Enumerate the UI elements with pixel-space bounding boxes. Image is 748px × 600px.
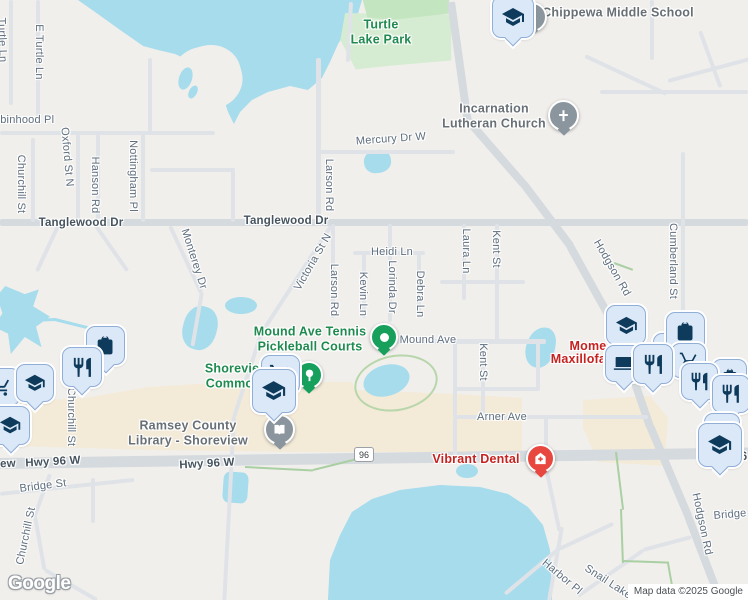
- fork-knife-icon: [642, 353, 665, 376]
- laptop-icon: [613, 353, 634, 374]
- road-oxford: [76, 131, 80, 222]
- poi-label-chippewa-middle-school[interactable]: Chippewa Middle School: [542, 6, 694, 21]
- street-label-kevin-ln: Kevin Ln: [357, 272, 369, 316]
- fork-knife-icon: [71, 356, 94, 379]
- graduation-cap-icon: [707, 432, 732, 457]
- graduation-cap-icon: [261, 378, 286, 403]
- tennis-dot-icon: [380, 333, 389, 342]
- graduation-cap-icon: [0, 414, 22, 436]
- library-marker[interactable]: [264, 414, 295, 445]
- poi-label-line: Incarnation: [442, 101, 546, 116]
- road: [698, 30, 722, 88]
- road: [35, 225, 60, 272]
- graduation-cap-icon: [24, 372, 46, 394]
- vibrant-dental-marker[interactable]: [526, 444, 555, 473]
- street-label-mercury-dr-w: Mercury Dr W: [356, 131, 427, 148]
- road: [600, 90, 748, 94]
- street-label-cumberland-st: Cumberland St: [667, 223, 679, 299]
- saved-marker-school[interactable]: [16, 364, 54, 402]
- road-hodgson-rd: [646, 424, 692, 518]
- road: [231, 168, 235, 222]
- street-label-heidi-ln: Heidi Ln: [371, 246, 413, 258]
- street-label-nottingham-pl: Nottingham Pl: [127, 140, 139, 212]
- road-hodgson-rd: [520, 181, 575, 250]
- saved-marker-school[interactable]: [252, 369, 296, 413]
- street-label-snail-lake: Snail Lake: [582, 562, 633, 600]
- road: [453, 341, 457, 418]
- road-churchill: [31, 138, 35, 222]
- street-label-kent-st-lower: Kent St: [477, 343, 489, 380]
- saved-marker-school[interactable]: [698, 423, 742, 467]
- road: [9, 0, 13, 105]
- road-harbor-pl: [558, 522, 614, 551]
- poi-label-line: Turtle: [351, 17, 412, 32]
- street-label-hwy96-fragment: ew: [0, 458, 16, 471]
- street-label-larson-rd-lower: Larson Rd: [328, 264, 340, 317]
- poi-label-vibrant-dental[interactable]: Vibrant Dental: [432, 452, 519, 466]
- street-label-kent-st-upper: Kent St: [490, 230, 502, 267]
- route-badge-96: 96: [354, 447, 374, 462]
- open-book-icon: [272, 422, 287, 437]
- incarnation-church-marker[interactable]: [548, 100, 579, 131]
- road: [455, 387, 540, 391]
- medical-house-icon: [533, 451, 548, 466]
- trail: [245, 466, 313, 472]
- road: [150, 168, 235, 172]
- shopping-cart-icon: [0, 376, 12, 398]
- street-label-hanson-rd: Hanson Rd: [89, 157, 101, 214]
- map-canvas[interactable]: 96 E Turtle Ln Turtle Ln Robinhood Pl Ch…: [0, 0, 748, 600]
- fork-knife-icon: [720, 383, 742, 405]
- saved-marker-school[interactable]: [0, 406, 30, 445]
- poi-label-incarnation-lutheran-church[interactable]: Incarnation Lutheran Church: [442, 101, 546, 131]
- poi-label-ramsey-county-library[interactable]: Ramsey County Library - Shoreview: [128, 418, 248, 448]
- street-label-turtle-ln-partial: Turtle Ln: [0, 17, 9, 62]
- poi-label-line: Mound Ave Tennis: [254, 324, 366, 339]
- street-label-robinhood-pl: Robinhood Pl: [0, 114, 54, 126]
- saved-marker-school-chippewa[interactable]: [492, 0, 534, 38]
- poi-label-line: Library - Shoreview: [128, 433, 248, 448]
- street-label-churchill-st: Churchill St: [15, 155, 27, 214]
- poi-label-momo-fragment-a[interactable]: Mome: [570, 339, 607, 353]
- road: [94, 225, 129, 272]
- street-label-e-turtle-ln: E Turtle Ln: [33, 24, 45, 79]
- poi-label-line: Pickleball Courts: [254, 339, 366, 354]
- map-attribution: Map data ©2025 Google: [628, 584, 748, 600]
- tennis-courts-marker[interactable]: [370, 323, 398, 351]
- street-label-tanglewood-dr-center: Tanglewood Dr: [244, 215, 329, 227]
- street-label-debra-ln: Debra Ln: [414, 271, 426, 318]
- pond: [225, 297, 257, 314]
- road: [440, 280, 525, 284]
- tree-icon: [302, 368, 317, 383]
- road: [667, 57, 748, 83]
- street-label-mound-ave: Mound Ave: [400, 334, 457, 346]
- saved-marker-school[interactable]: [606, 305, 646, 345]
- google-logo[interactable]: Google: [8, 573, 70, 595]
- street-label-larson-rd-upper: Larson Rd: [323, 159, 335, 212]
- poi-label-momo-fragment-c[interactable]: Maxillofac: [551, 352, 613, 366]
- road-mercury: [318, 150, 455, 154]
- street-label-oxford-st-n: Oxford St N: [58, 127, 75, 187]
- road-nottingham: [141, 131, 145, 222]
- cross-icon: [556, 108, 571, 123]
- street-label-hwy-96-w-mid: Hwy 96 W: [179, 457, 235, 472]
- road-robinhood-pl: [0, 131, 215, 135]
- road-churchill-s: [33, 516, 46, 571]
- street-label-arner-ave: Arner Ave: [477, 411, 527, 423]
- road: [453, 418, 457, 456]
- graduation-cap-icon: [615, 314, 638, 337]
- shopping-bag-icon: [674, 320, 696, 342]
- street-label-churchill-st-mid: Churchill St: [65, 388, 77, 447]
- poi-label-tennis-pickleball-courts[interactable]: Mound Ave Tennis Pickleball Courts: [254, 324, 366, 354]
- graduation-cap-icon: [501, 5, 525, 29]
- pond: [222, 471, 249, 504]
- road: [536, 341, 540, 390]
- street-label-bridge-st-right: Bridge St: [713, 506, 748, 522]
- trail: [620, 509, 624, 563]
- street-label-tanglewood-dr-left: Tanglewood Dr: [39, 217, 124, 229]
- poi-label-turtle-lake-park[interactable]: Turtle Lake Park: [351, 17, 412, 47]
- road: [91, 478, 95, 523]
- poi-label-line: Ramsey County: [128, 418, 248, 433]
- saved-marker-restaurant[interactable]: [712, 375, 748, 413]
- street-label-churchill-st-bottom: Churchill St: [14, 506, 38, 566]
- trail: [623, 560, 669, 564]
- street-label-lorinda-dr: Lorinda Dr: [386, 260, 398, 313]
- road-snail-lake: [642, 535, 691, 552]
- fork-knife-icon: [689, 371, 710, 392]
- pond: [456, 464, 478, 478]
- poi-label-line: Lutheran Church: [442, 116, 546, 131]
- road-larson-upper: [316, 58, 321, 222]
- road-cumberland: [681, 152, 685, 318]
- road: [148, 58, 152, 133]
- saved-marker-restaurant[interactable]: [633, 344, 673, 384]
- poi-label-line: Lake Park: [351, 32, 412, 47]
- street-label-laura-ln: Laura Ln: [460, 228, 472, 273]
- saved-marker-restaurant[interactable]: [62, 347, 102, 387]
